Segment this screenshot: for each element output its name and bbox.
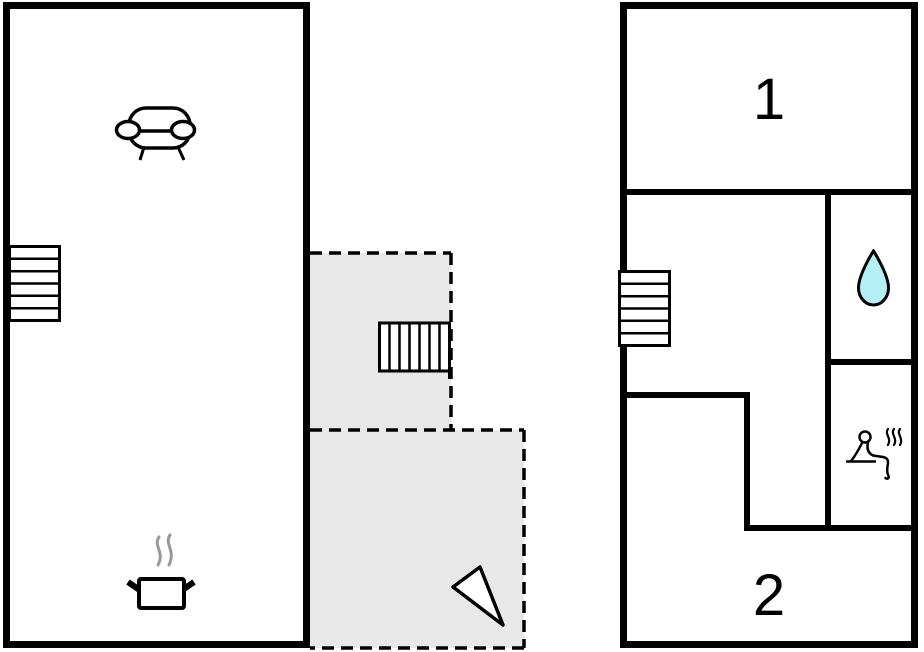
staircase-icon [380, 323, 450, 379]
wall-bath-divider [825, 359, 911, 365]
water-drop-icon [855, 249, 892, 308]
room-1-label: 1 [627, 56, 911, 144]
wall-room2-divider [744, 525, 911, 531]
wall-hall-horizontal [627, 392, 750, 398]
floor-plan-ground [3, 2, 310, 648]
room-2-label: 2 [627, 552, 911, 640]
staircase-icon [8, 245, 61, 322]
annex-fill [310, 253, 524, 648]
steam-line [157, 537, 160, 565]
staircase-icon [618, 270, 671, 347]
wall-hall-vertical [744, 392, 750, 531]
floor-plan-upper: 1 2 [620, 2, 918, 648]
annex-area [310, 250, 531, 652]
sauna-icon [843, 426, 903, 483]
wall-room1-divider [627, 189, 911, 195]
steam-line [168, 535, 171, 565]
floorplan-canvas: 1 2 [0, 0, 924, 652]
sofa-icon [114, 104, 204, 162]
cooking-pot-icon [123, 531, 199, 613]
